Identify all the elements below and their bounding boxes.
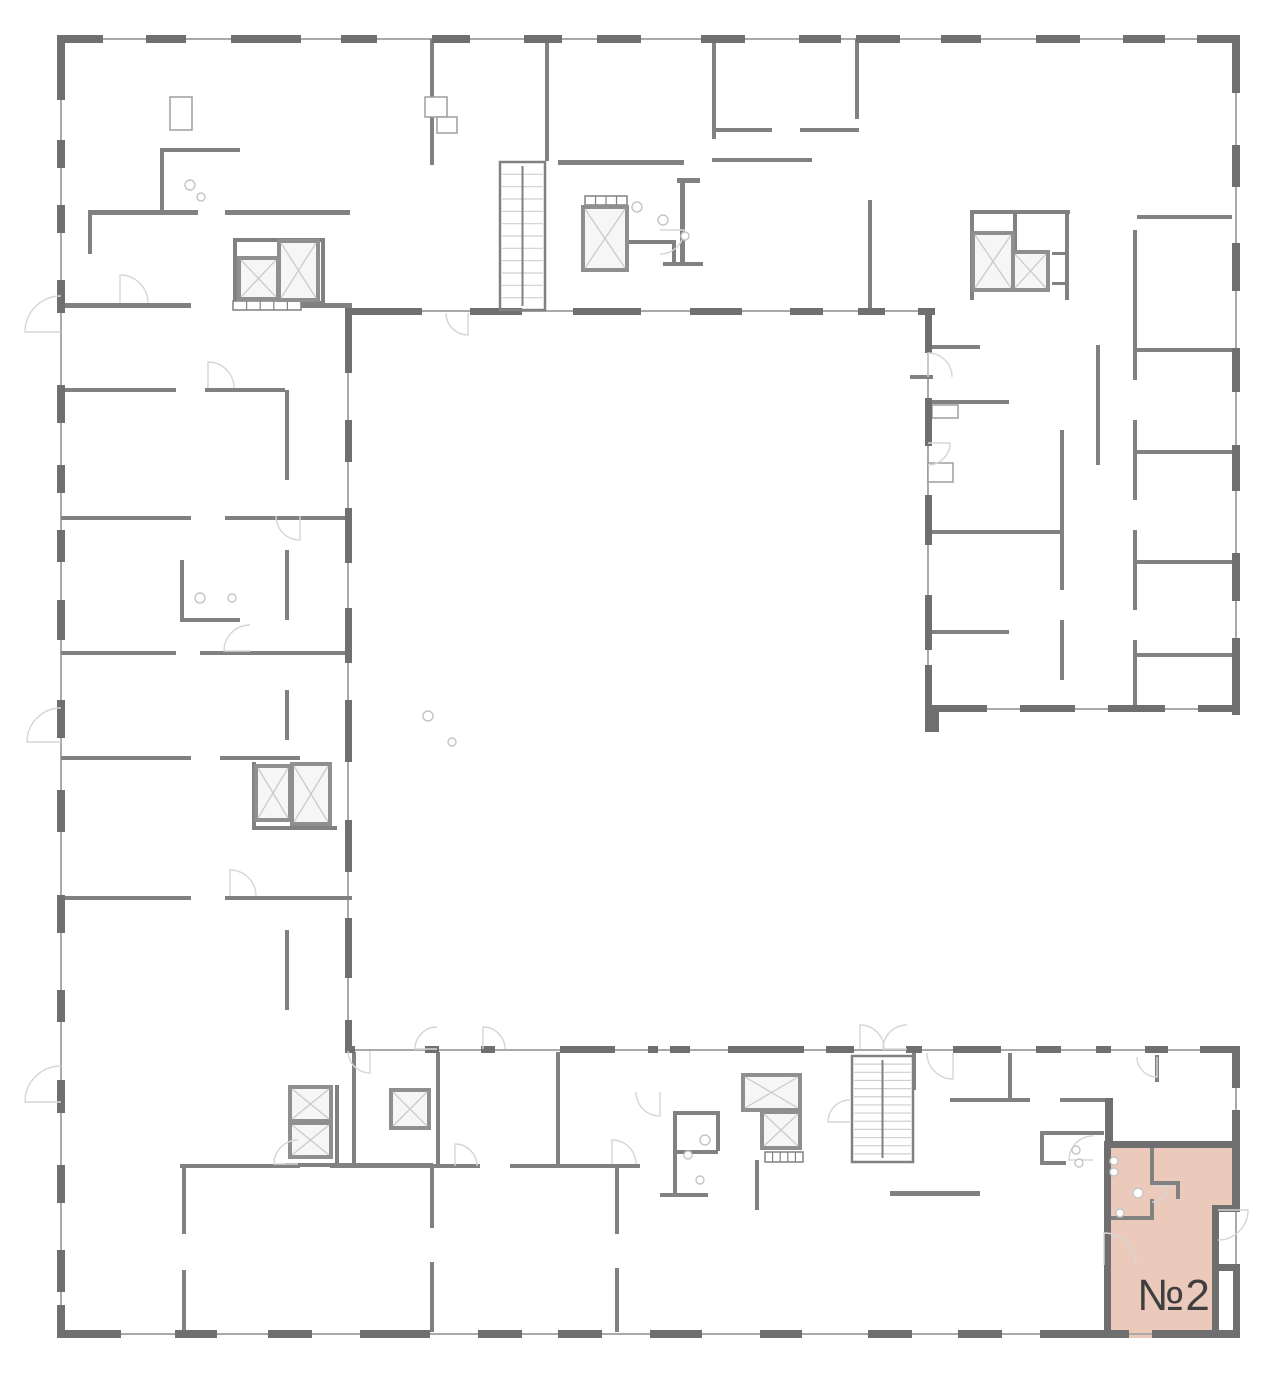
door-arc — [25, 296, 61, 332]
bath-fixture — [1110, 1168, 1118, 1176]
door-arc — [928, 443, 950, 465]
bath-fixture — [681, 232, 689, 240]
door-arc — [120, 275, 148, 303]
vent-grids-layer — [233, 196, 803, 1162]
floor-plan-page: №2 — [0, 0, 1280, 1374]
bath-fixture — [1072, 1146, 1080, 1154]
exterior-walls-layer — [57, 35, 1240, 1338]
bath-fixture — [1133, 1188, 1143, 1198]
door-arc — [27, 708, 61, 742]
bath-fixture — [696, 1176, 704, 1184]
door-arc — [415, 1027, 437, 1049]
door-arc — [1218, 1210, 1248, 1240]
door-arc — [860, 1025, 884, 1049]
door-arc — [348, 1051, 370, 1073]
door-arc — [883, 1025, 907, 1049]
door-arc — [25, 1066, 61, 1102]
bath-fixture — [1110, 1157, 1118, 1165]
bath-fixture — [684, 1151, 692, 1159]
door-arc — [927, 1053, 953, 1079]
door-arc — [928, 353, 952, 377]
bath-fixture — [197, 193, 205, 201]
bath-fixture — [195, 593, 205, 603]
door-arc — [612, 1140, 636, 1164]
bath-fixture — [423, 711, 433, 721]
door-arcs-layer — [25, 230, 1248, 1265]
bath-fixture — [658, 215, 668, 225]
unit-2-label: №2 — [1137, 1271, 1211, 1320]
door-arc — [636, 1092, 660, 1116]
bath-fixture — [1075, 1159, 1083, 1167]
door-arc — [483, 1027, 505, 1049]
bath-fixture — [448, 738, 456, 746]
door-arc — [828, 1100, 850, 1122]
door-arc — [446, 313, 468, 335]
door-arc — [208, 362, 234, 388]
door-arc — [1137, 1057, 1157, 1077]
floor-plan: №2 — [0, 0, 1280, 1374]
bath-fixture — [1116, 1209, 1124, 1217]
bath-fixture — [185, 180, 195, 190]
door-arc — [230, 870, 256, 896]
bath-fixture — [700, 1135, 710, 1145]
bath-fixture — [228, 594, 236, 602]
bath-fixtures-layer — [185, 180, 1143, 1217]
door-arc — [224, 625, 250, 651]
door-arc — [455, 1144, 477, 1166]
window-lines-layer — [57, 35, 1240, 1338]
interior-walls-layer — [61, 39, 1232, 1332]
bath-fixture — [632, 202, 642, 212]
